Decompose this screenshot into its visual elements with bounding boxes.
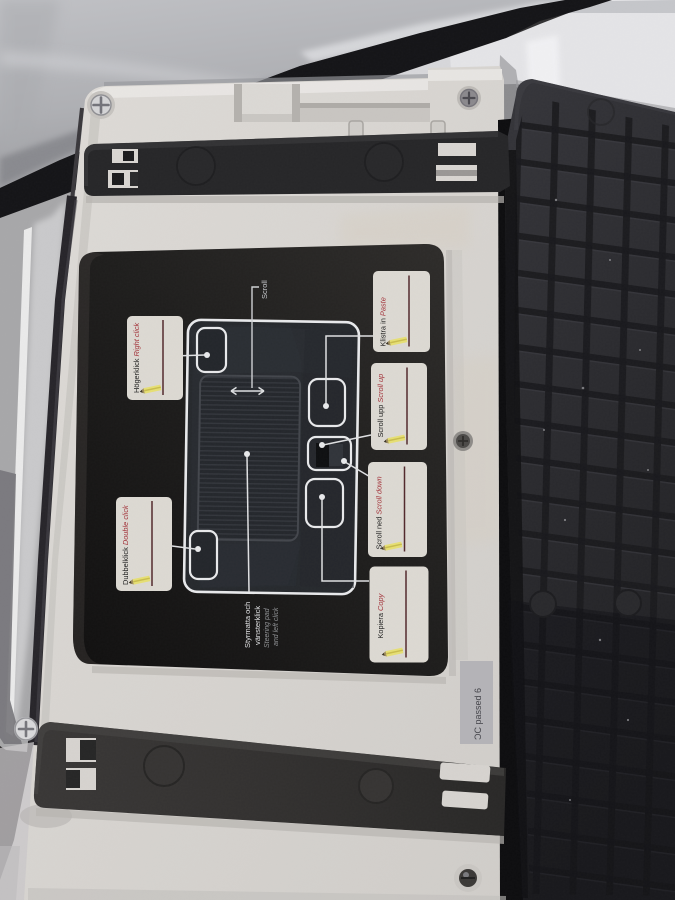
svg-text:Scroll: Scroll [260, 280, 269, 299]
svg-text:Scroll upp Scroll up: Scroll upp Scroll up [376, 374, 385, 438]
svg-text:Dubbelklick Double click: Dubbelklick Double click [121, 505, 130, 585]
svg-text:Högerklick Right click: Högerklick Right click [132, 322, 141, 393]
svg-text:Kopiera Copy: Kopiera Copy [376, 592, 385, 638]
svg-text:Styrmatta och: Styrmatta och [243, 602, 252, 648]
svg-text:Scroll ned Scroll down: Scroll ned Scroll down [375, 476, 384, 549]
svg-text:vänsterklick: vänsterklick [253, 606, 262, 645]
svg-text:Klistra in Paste: Klistra in Paste [379, 297, 388, 346]
svg-text:and left click: and left click [273, 607, 280, 646]
svg-text:ƆC passed 6: ƆC passed 6 [473, 688, 483, 740]
svg-text:Steering pad: Steering pad [264, 607, 271, 648]
